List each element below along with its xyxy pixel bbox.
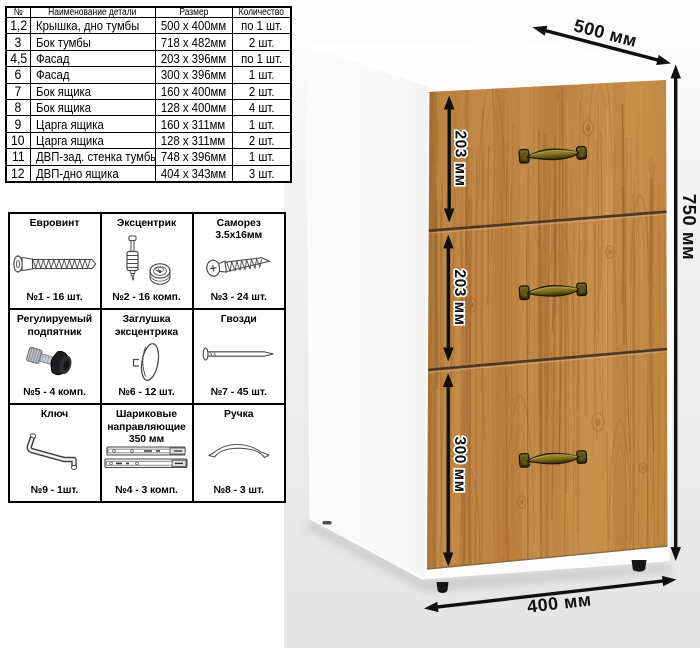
svg-text:300 мм: 300 мм: [451, 436, 468, 492]
svg-text:750 мм: 750 мм: [679, 194, 700, 260]
svg-text:203 мм: 203 мм: [452, 130, 469, 186]
svg-text:203 мм: 203 мм: [451, 269, 468, 325]
